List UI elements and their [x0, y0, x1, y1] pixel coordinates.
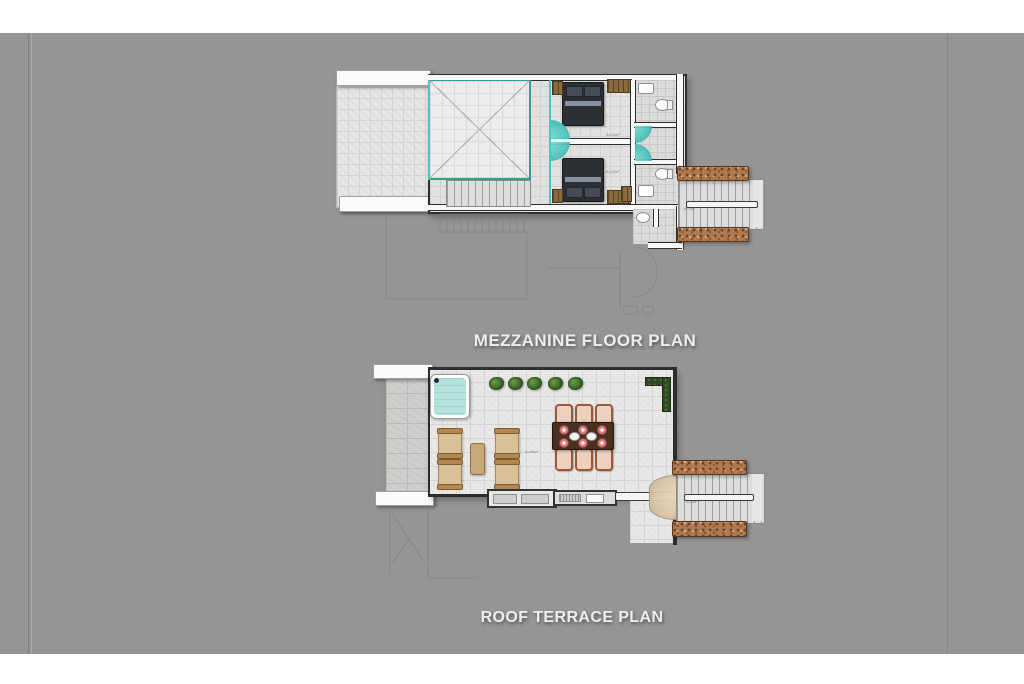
plan-title-roof-terrace: ROOF TERRACE PLAN [422, 609, 722, 627]
sink [586, 494, 604, 503]
planter-bar [373, 364, 433, 379]
bbq-counter [553, 490, 617, 506]
dining-chair [595, 448, 613, 471]
jacuzzi-water [434, 378, 466, 415]
parapet-wall-top [428, 367, 677, 370]
stone-wall [672, 460, 747, 475]
serving-dish [569, 432, 580, 441]
lounge-chair [495, 461, 519, 488]
plate [559, 438, 569, 448]
jacuzzi [430, 374, 470, 419]
serving-dish [586, 432, 597, 441]
lounge-chair [438, 430, 462, 457]
stone-wall [672, 521, 747, 537]
roof-terrace-plan: A=40m² A=4m² ROOF TERRACE PLAN [0, 0, 1024, 684]
lounge-chair [495, 430, 519, 457]
grill [559, 494, 581, 502]
planter-bar [375, 491, 434, 506]
l-planter [662, 377, 671, 412]
area-label: A=4m² [686, 500, 697, 504]
plate [559, 425, 569, 435]
lower-floor-ghost-outline [385, 505, 495, 585]
dining-chair [555, 448, 573, 471]
coffee-table [470, 443, 485, 475]
plate [597, 438, 607, 448]
plan-sheet: A=12m² A=12m² A=4m² MEZZANINE FLOOR PLAN [0, 0, 1024, 684]
dining-table [552, 422, 614, 450]
plate [597, 425, 607, 435]
jacuzzi-jet [434, 378, 439, 383]
side-terrace-tiles [385, 377, 430, 493]
appliance [521, 494, 549, 504]
kitchen-counter [487, 489, 557, 508]
lounge-chair [438, 461, 462, 488]
appliance [493, 494, 517, 504]
stair-door-arc [649, 475, 676, 520]
dining-chair [575, 448, 593, 471]
area-label: A=40m² [525, 450, 539, 454]
